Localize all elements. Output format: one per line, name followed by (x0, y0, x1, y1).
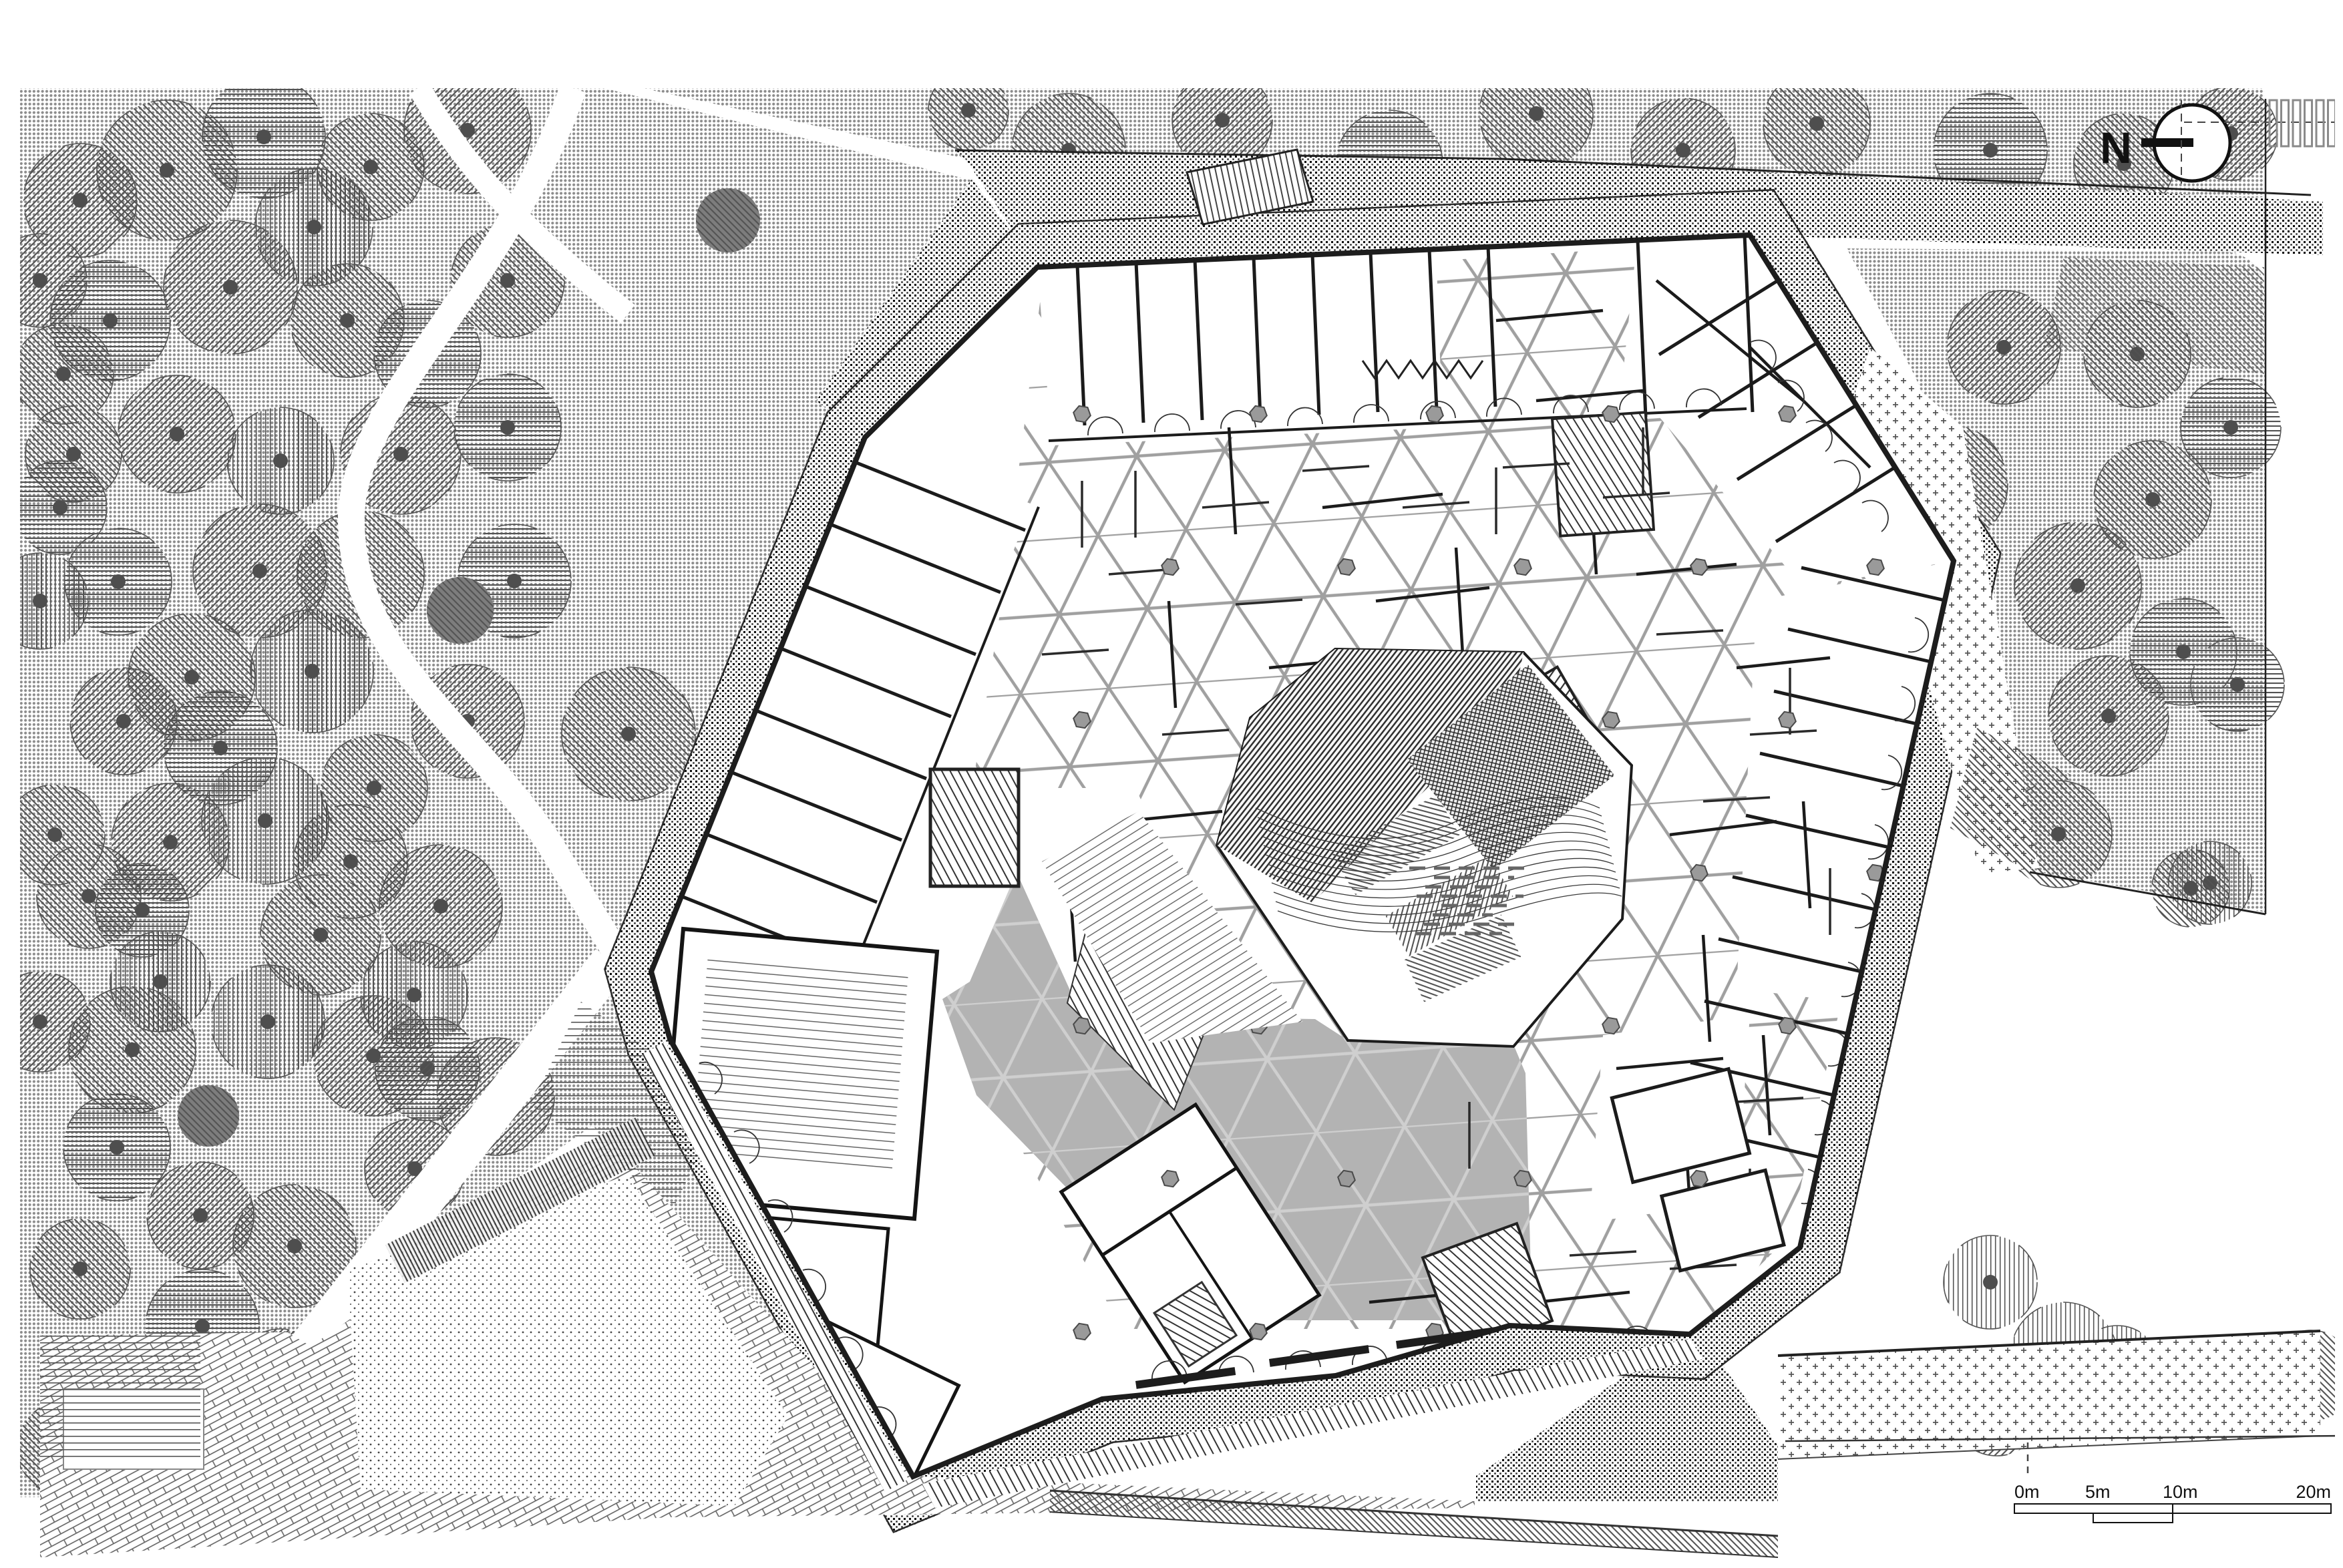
svg-text:10m: 10m (2163, 1482, 2198, 1502)
svg-text:5m: 5m (2085, 1482, 2111, 1502)
svg-text:0m: 0m (2014, 1482, 2040, 1502)
svg-text:20m: 20m (2296, 1482, 2331, 1502)
svg-text:N: N (2100, 123, 2132, 172)
